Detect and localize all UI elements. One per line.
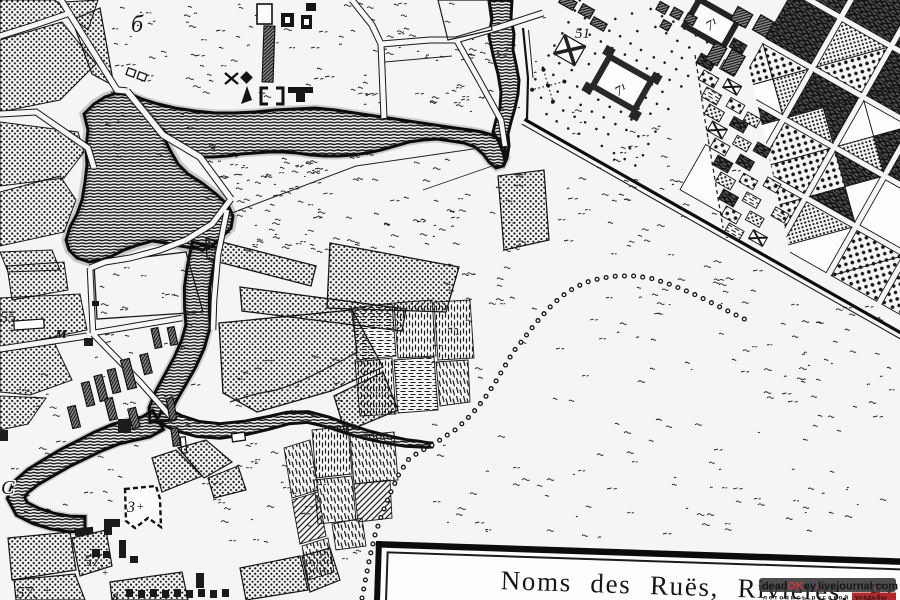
svg-text:усадьбы: усадьбы [855, 594, 887, 600]
svg-text:м: м [54, 323, 67, 342]
svg-text:+: + [137, 499, 144, 513]
svg-text:б: б [131, 12, 144, 38]
svg-text:+: + [44, 585, 50, 597]
svg-text:я: я [111, 589, 119, 600]
svg-text:deadOKey.livejournal.com: deadOKey.livejournal.com [762, 581, 898, 593]
svg-text:57,: 57, [84, 553, 104, 570]
svg-text:55: 55 [0, 309, 16, 326]
svg-text:3: 3 [126, 499, 135, 516]
svg-text:С: С [1, 477, 15, 499]
svg-text:+: + [102, 567, 108, 579]
svg-text:+: + [8, 325, 15, 337]
svg-text:57.: 57. [16, 583, 37, 600]
svg-text:51: 51 [575, 26, 590, 42]
svg-text:летопись русской: летопись русской [763, 594, 850, 600]
